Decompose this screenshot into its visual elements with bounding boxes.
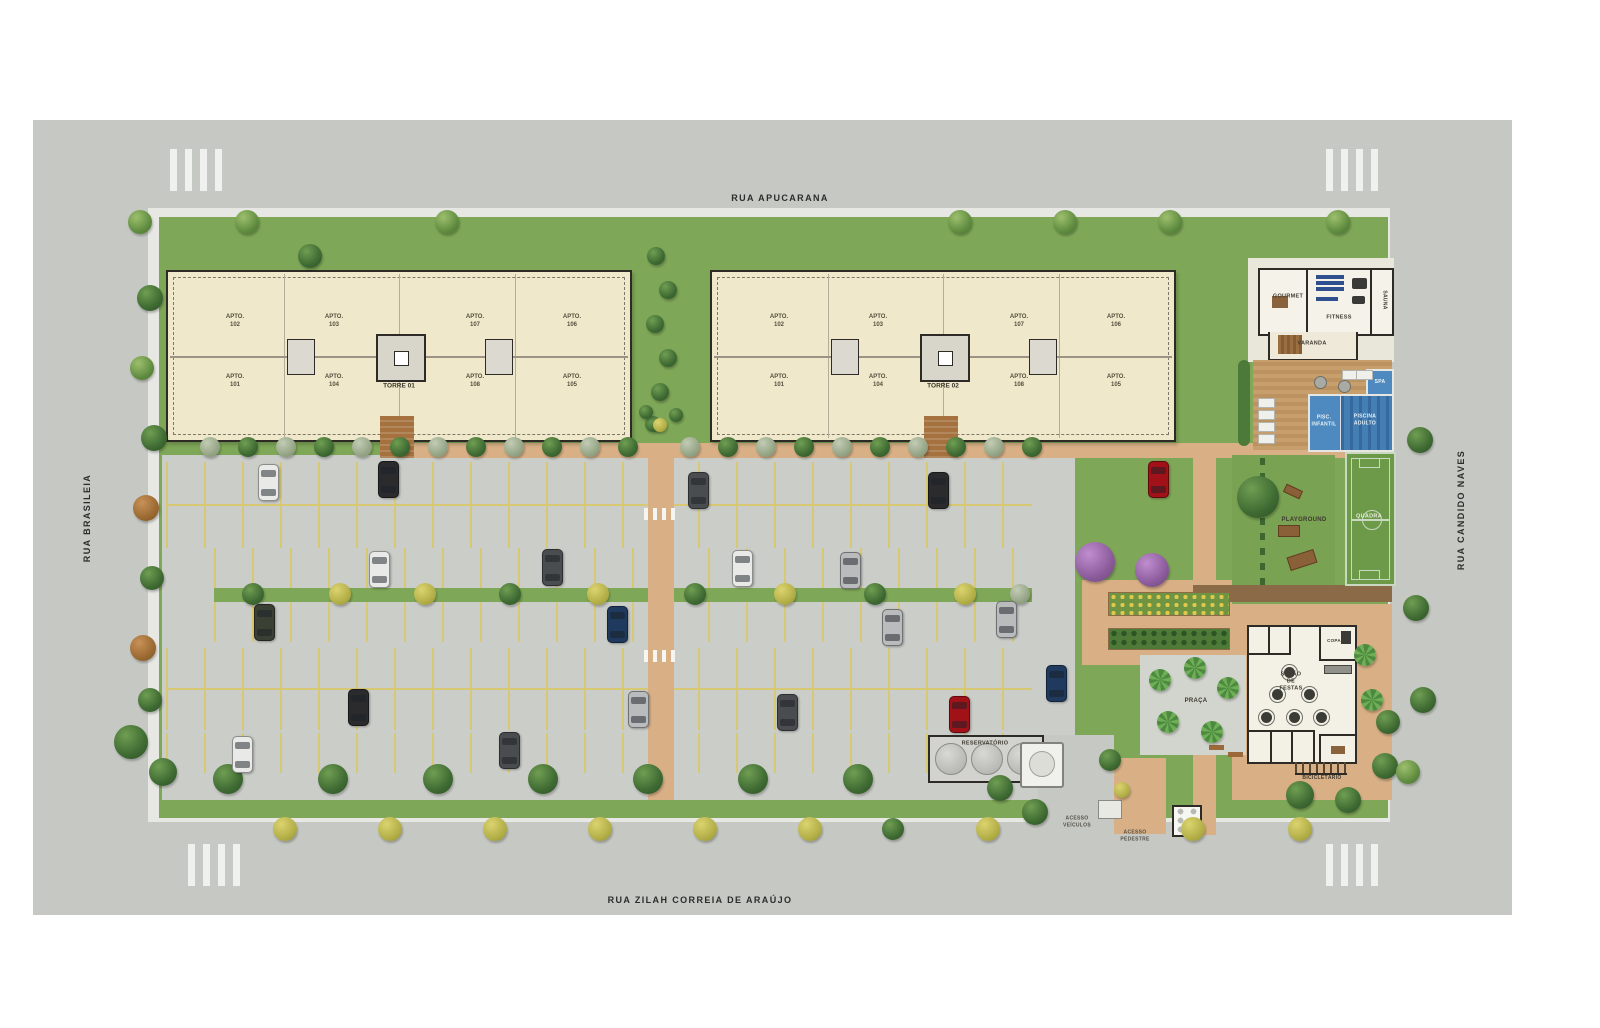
parking-stall-band — [166, 462, 1032, 504]
tree-icon — [542, 437, 562, 457]
party-table-icon — [1261, 712, 1272, 723]
playground-label: PLAYGROUND — [1281, 517, 1326, 525]
tree-icon — [114, 725, 148, 759]
tower-stair-core — [485, 339, 513, 375]
palm-tree-icon — [1157, 711, 1179, 733]
car-rear-window — [381, 486, 396, 493]
palm-tree-icon — [1354, 644, 1376, 666]
wall — [1370, 270, 1372, 334]
car-icon — [732, 550, 753, 587]
deck-table-icon — [1314, 376, 1327, 389]
gym-equipment-icon — [1352, 296, 1365, 304]
crosswalk-icon — [188, 844, 242, 886]
tower-elevator-core — [920, 334, 970, 382]
piscina-infantil-label: PISC. INFANTIL — [1312, 415, 1337, 428]
car-icon — [840, 552, 861, 589]
apartment-label: APTO. 106 — [1107, 314, 1125, 330]
car-rear-window — [931, 497, 946, 504]
tree-icon — [1135, 553, 1169, 587]
play-equipment-icon — [1278, 525, 1300, 537]
car-icon — [996, 601, 1017, 638]
tree-icon — [864, 583, 886, 605]
car-icon — [688, 472, 709, 509]
tree-icon — [298, 244, 322, 268]
tree-icon — [794, 437, 814, 457]
tree-icon — [1372, 753, 1398, 779]
tree-icon — [1053, 210, 1077, 234]
crosswalk-icon — [1326, 149, 1380, 191]
reservatorio-label: RESERVATÓRIO — [962, 740, 1009, 747]
gourmet-fitness-building — [1258, 268, 1394, 336]
tree-icon — [659, 349, 677, 367]
tree-icon — [235, 210, 259, 234]
car-icon — [628, 691, 649, 728]
tree-icon — [954, 583, 976, 605]
apartment-label: APTO. 103 — [325, 314, 343, 330]
spa-label: SPA — [1375, 379, 1386, 386]
car-rear-window — [610, 631, 625, 638]
tower-elevator-core — [376, 334, 426, 382]
deck-table-icon — [1338, 380, 1351, 393]
tree-icon — [200, 437, 220, 457]
service-rooms-block — [1249, 730, 1315, 762]
car-rear-window — [502, 757, 517, 764]
car-icon — [369, 551, 390, 588]
wall — [1270, 732, 1272, 762]
car-icon — [949, 696, 970, 733]
tree-icon — [843, 764, 873, 794]
car-icon — [882, 609, 903, 646]
tree-icon — [1114, 782, 1130, 798]
tree-icon — [984, 437, 1004, 457]
wall — [1291, 732, 1293, 762]
car-icon — [777, 694, 798, 731]
tree-icon — [314, 437, 334, 457]
apartment-label: APTO. 106 — [563, 314, 581, 330]
acesso-pedestre-label: ACESSO PEDESTRE — [1120, 830, 1149, 843]
sauna-label: SAUNA — [1381, 290, 1388, 309]
tree-icon — [1396, 760, 1420, 784]
tree-icon — [378, 817, 402, 841]
tree-icon — [647, 247, 665, 265]
car-windshield — [999, 607, 1014, 614]
parking-stall-band — [166, 648, 1032, 688]
tree-icon — [130, 635, 156, 661]
apartment-label: APTO. 102 — [226, 314, 244, 330]
pool-lounger-icon — [1258, 422, 1275, 432]
car-windshield — [1049, 671, 1064, 678]
play-equipment-icon — [1283, 484, 1303, 500]
car-rear-window — [885, 634, 900, 641]
tree-icon — [428, 437, 448, 457]
tree-icon — [669, 408, 683, 422]
palm-tree-icon — [1217, 677, 1239, 699]
tree-icon — [948, 210, 972, 234]
car-windshield — [843, 558, 858, 565]
tree-icon — [1403, 595, 1429, 621]
car-windshield — [885, 615, 900, 622]
car-windshield — [545, 555, 560, 562]
court-goal-box — [1359, 458, 1380, 468]
tree-icon — [318, 764, 348, 794]
car-icon — [928, 472, 949, 509]
car-windshield — [691, 478, 706, 485]
wall — [1306, 270, 1308, 334]
car-icon — [258, 464, 279, 501]
tower-label: TORRE 02 — [927, 383, 959, 390]
table-icon — [1331, 746, 1345, 754]
tree-icon — [587, 583, 609, 605]
tree-icon — [738, 764, 768, 794]
gym-equipment-icon — [1316, 297, 1338, 301]
car-icon — [542, 549, 563, 586]
party-table-icon — [1304, 689, 1315, 700]
tree-icon — [646, 315, 664, 333]
tree-icon — [651, 383, 669, 401]
gourmet-label: GOURMET — [1273, 293, 1303, 300]
pool-lounger-icon — [1258, 410, 1275, 420]
car-rear-window — [372, 576, 387, 583]
bike-rack-icon — [1295, 762, 1347, 775]
tree-icon — [128, 210, 152, 234]
tree-icon — [140, 566, 164, 590]
tree-icon — [1407, 427, 1433, 453]
car-rear-window — [780, 719, 795, 726]
tree-icon — [352, 437, 372, 457]
wall — [1268, 627, 1270, 653]
gym-equipment-icon — [1352, 278, 1367, 289]
praca-label: PRAÇA — [1185, 698, 1208, 706]
flower-garden-bed — [1108, 592, 1230, 616]
car-icon — [499, 732, 520, 769]
play-equipment-icon — [1287, 549, 1318, 571]
parking-stall-band — [214, 548, 1032, 588]
tree-icon — [1075, 542, 1115, 582]
shrub-garden-bed — [1108, 628, 1230, 650]
varanda-label: VARANDA — [1297, 340, 1326, 347]
car-windshield — [631, 697, 646, 704]
gym-equipment-icon — [1316, 275, 1344, 279]
tree-icon — [1022, 437, 1042, 457]
tree-icon — [908, 437, 928, 457]
tree-icon — [1022, 799, 1048, 825]
crosswalk-icon — [170, 149, 224, 191]
tree-icon — [390, 437, 410, 457]
street-label-right: RUA CANDIDO NAVES — [1456, 450, 1468, 570]
apartment-label: APTO. 107 — [1010, 314, 1028, 330]
tree-icon — [138, 688, 162, 712]
tree-icon — [882, 818, 904, 840]
gym-equipment-icon — [1316, 287, 1344, 291]
tree-icon — [435, 210, 459, 234]
tree-icon — [680, 437, 700, 457]
apartment-label: APTO. 104 — [325, 374, 343, 390]
reservoir-tank-icon — [935, 743, 967, 775]
tree-icon — [1288, 817, 1312, 841]
tree-icon — [414, 583, 436, 605]
car-windshield — [351, 695, 366, 702]
car-rear-window — [545, 574, 560, 581]
parking-stall-band — [166, 688, 1032, 730]
tree-icon — [659, 281, 677, 299]
apartment-label: APTO. 104 — [869, 374, 887, 390]
pool-lounger-icon — [1258, 434, 1275, 444]
bicicletario-label: BICICLETÁRIO — [1302, 775, 1341, 782]
apartment-label: APTO. 105 — [1107, 374, 1125, 390]
reservoir-tank-icon — [971, 743, 1003, 775]
tree-icon — [1099, 749, 1121, 771]
party-hall-building — [1247, 625, 1357, 764]
tree-icon — [653, 418, 667, 432]
tree-icon — [639, 405, 653, 419]
car-windshield — [257, 610, 272, 617]
elevator-shaft-icon — [938, 351, 953, 366]
party-table-icon — [1316, 712, 1327, 723]
car-rear-window — [1049, 690, 1064, 697]
quadra-label: QUADRA — [1356, 513, 1382, 520]
stepping-path-icon — [1260, 455, 1265, 585]
car-rear-window — [351, 714, 366, 721]
tree-icon — [273, 817, 297, 841]
apartment-label: APTO. 105 — [563, 374, 581, 390]
tree-icon — [870, 437, 890, 457]
street-label-bottom: RUA ZILAH CORREIA DE ARAÚJO — [608, 895, 793, 907]
tree-icon — [718, 437, 738, 457]
restroom-block — [1249, 627, 1291, 655]
site-plan-canvas: APTO. 102APTO. 103APTO. 107APTO. 106APTO… — [0, 0, 1600, 1028]
copa-label: COPA — [1327, 638, 1341, 644]
car-rear-window — [261, 489, 276, 496]
car-windshield — [1151, 467, 1166, 474]
car-windshield — [261, 470, 276, 477]
tree-icon — [499, 583, 521, 605]
street-right — [1390, 120, 1512, 915]
tree-icon — [588, 817, 612, 841]
salao-festas-label: SALÃO DE FESTAS — [1279, 671, 1302, 692]
apartment-label: APTO. 103 — [869, 314, 887, 330]
car-icon — [378, 461, 399, 498]
tree-icon — [242, 583, 264, 605]
car-icon — [348, 689, 369, 726]
fitness-label: FITNESS — [1326, 314, 1351, 321]
tree-icon — [133, 495, 159, 521]
pool-lounger-icon — [1258, 398, 1275, 408]
tree-icon — [1237, 476, 1279, 518]
tree-icon — [1286, 781, 1314, 809]
tree-icon — [987, 775, 1013, 801]
central-walkway — [648, 443, 674, 800]
elevator-shaft-icon — [394, 351, 409, 366]
tree-icon — [1410, 687, 1436, 713]
tree-icon — [1335, 787, 1361, 813]
car-windshield — [610, 612, 625, 619]
apartment-label: APTO. 101 — [770, 374, 788, 390]
tree-icon — [483, 817, 507, 841]
tower-stair-core — [1029, 339, 1057, 375]
tree-icon — [1376, 710, 1400, 734]
street-label-left: RUA BRASILEIA — [82, 474, 94, 562]
gym-equipment-icon — [1316, 281, 1344, 285]
pedestrian-crossing-marks — [644, 650, 678, 662]
tree-icon — [466, 437, 486, 457]
apartment-label: APTO. 108 — [1010, 374, 1028, 390]
car-icon — [232, 736, 253, 773]
bench-icon — [1209, 745, 1224, 750]
car-icon — [1046, 665, 1067, 702]
car-rear-window — [952, 721, 967, 728]
car-windshield — [952, 702, 967, 709]
tree-icon — [580, 437, 600, 457]
car-rear-window — [691, 497, 706, 504]
palm-tree-icon — [1149, 669, 1171, 691]
pool-lounger-icon — [1356, 370, 1373, 380]
hedge — [1238, 360, 1250, 446]
car-rear-window — [235, 761, 250, 768]
car-icon — [254, 604, 275, 641]
tree-icon — [149, 758, 177, 786]
tree-icon — [798, 817, 822, 841]
piscina-adulto-label: PISCINA ADULTO — [1354, 414, 1376, 427]
tree-icon — [238, 437, 258, 457]
car-rear-window — [843, 577, 858, 584]
apartment-label: APTO. 108 — [466, 374, 484, 390]
car-rear-window — [735, 575, 750, 582]
tree-icon — [141, 425, 167, 451]
parking-stall-band — [166, 733, 1032, 773]
tree-icon — [693, 817, 717, 841]
tower-stair-core — [287, 339, 315, 375]
car-windshield — [372, 557, 387, 564]
tree-icon — [423, 764, 453, 794]
tower-stair-core — [831, 339, 859, 375]
palm-tree-icon — [1184, 657, 1206, 679]
tree-icon — [130, 356, 154, 380]
gatehouse — [1020, 742, 1064, 788]
street-label-top: RUA APUCARANA — [731, 193, 829, 205]
car-windshield — [931, 478, 946, 485]
court-goal-box — [1359, 570, 1380, 580]
party-table-icon — [1289, 712, 1300, 723]
tree-icon — [528, 764, 558, 794]
tree-icon — [1158, 210, 1182, 234]
palm-tree-icon — [1201, 721, 1223, 743]
bench-icon — [1228, 752, 1243, 757]
tree-icon — [504, 437, 524, 457]
stove-icon — [1341, 631, 1351, 644]
tree-icon — [946, 437, 966, 457]
tree-icon — [633, 764, 663, 794]
car-rear-window — [257, 629, 272, 636]
tree-icon — [618, 437, 638, 457]
tree-icon — [976, 817, 1000, 841]
tree-icon — [137, 285, 163, 311]
car-icon — [607, 606, 628, 643]
tree-icon — [276, 437, 296, 457]
tree-icon — [1181, 817, 1205, 841]
tree-icon — [832, 437, 852, 457]
parking-green-strip — [674, 588, 1032, 602]
apartment-label: APTO. 102 — [770, 314, 788, 330]
pedestrian-crossing-marks — [644, 508, 678, 520]
palm-tree-icon — [1361, 689, 1383, 711]
parking-stall-band — [166, 504, 1032, 548]
car-rear-window — [1151, 486, 1166, 493]
pedestrian-gate — [1098, 800, 1122, 819]
tree-icon — [329, 583, 351, 605]
car-windshield — [235, 742, 250, 749]
tree-icon — [684, 583, 706, 605]
car-windshield — [381, 467, 396, 474]
car-windshield — [502, 738, 517, 745]
car-rear-window — [631, 716, 646, 723]
apartment-label: APTO. 107 — [466, 314, 484, 330]
crosswalk-icon — [1326, 844, 1380, 886]
apartment-label: APTO. 101 — [226, 374, 244, 390]
tree-icon — [1326, 210, 1350, 234]
car-windshield — [735, 556, 750, 563]
tree-icon — [774, 583, 796, 605]
tower-label: TORRE 01 — [383, 383, 415, 390]
car-windshield — [780, 700, 795, 707]
acesso-veiculos-label: ACESSO VEÍCULOS — [1063, 816, 1091, 829]
car-rear-window — [999, 626, 1014, 633]
counter-icon — [1324, 665, 1352, 674]
car-icon — [1148, 461, 1169, 498]
tree-icon — [756, 437, 776, 457]
gatehouse-roof-icon — [1029, 751, 1055, 777]
